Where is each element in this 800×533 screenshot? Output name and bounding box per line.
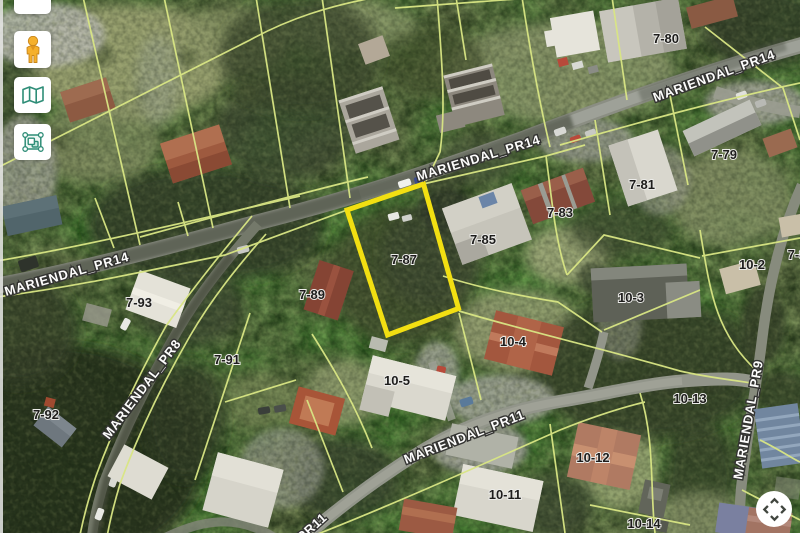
svg-text:10-2: 10-2 xyxy=(739,257,765,272)
svg-text:10-11: 10-11 xyxy=(489,487,522,502)
svg-text:7-80: 7-80 xyxy=(653,31,679,46)
svg-text:10-13: 10-13 xyxy=(673,391,706,406)
svg-text:7-79: 7-79 xyxy=(711,147,737,162)
svg-text:10-5: 10-5 xyxy=(384,373,410,388)
svg-text:10-3: 10-3 xyxy=(618,290,644,305)
svg-text:7-89: 7-89 xyxy=(299,287,325,302)
svg-text:10-12: 10-12 xyxy=(576,450,609,465)
svg-text:7-81: 7-81 xyxy=(629,177,655,192)
svg-text:7-93: 7-93 xyxy=(126,295,152,310)
svg-text:10-14: 10-14 xyxy=(627,516,661,531)
svg-text:7-83: 7-83 xyxy=(547,205,573,220)
svg-text:7-87: 7-87 xyxy=(391,252,417,267)
svg-text:7-85: 7-85 xyxy=(470,232,496,247)
svg-text:10-4: 10-4 xyxy=(500,334,527,349)
svg-text:7-8: 7-8 xyxy=(788,247,800,262)
svg-text:7-91: 7-91 xyxy=(214,352,240,367)
svg-text:7-92: 7-92 xyxy=(33,407,59,422)
